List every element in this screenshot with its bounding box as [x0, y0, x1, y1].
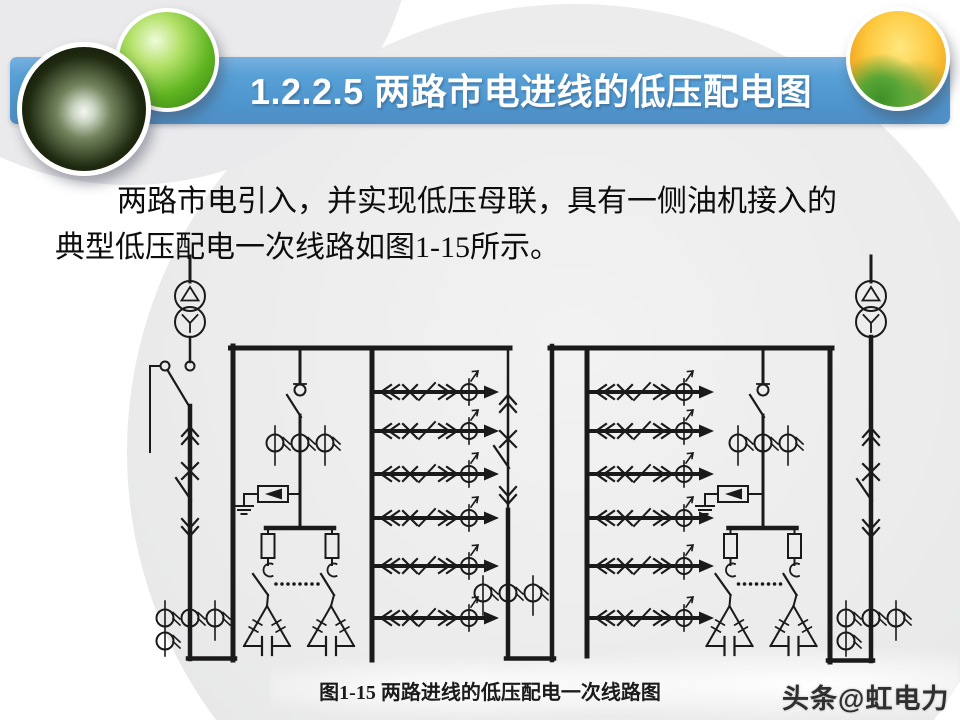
- feeder-rows-left: [372, 371, 499, 631]
- body-paragraph: 两路市电引入，并实现低压母联，具有一侧油机接入的 典型低压配电一次线路如图1-1…: [55, 179, 925, 271]
- feeder-rows-right: [587, 371, 714, 631]
- incoming-utility-left: [175, 256, 205, 362]
- feeder-row: [587, 410, 714, 444]
- ct-group-icon: [730, 426, 804, 465]
- drawout-breaker-icon: [494, 395, 516, 504]
- ct-group-icon: [838, 601, 912, 656]
- figure-caption: 图1-15 两路进线的低压配电一次线路图: [240, 676, 740, 705]
- capacitor-bank-icon: [244, 528, 354, 655]
- feeder-row: [587, 453, 714, 487]
- drawout-breaker-icon: [857, 428, 879, 537]
- ground-icon: [696, 506, 714, 514]
- capacitor-bank-icon: [707, 528, 817, 655]
- transformer-right-icon: [856, 281, 886, 337]
- transformer-left-icon: [175, 281, 205, 337]
- body-line-1: 两路市电引入，并实现低压母联，具有一侧油机接入的: [55, 179, 925, 225]
- feeder-row: [372, 497, 499, 531]
- feeder-row: [372, 453, 499, 487]
- feeder-row: [587, 545, 714, 579]
- feeder-row: [372, 545, 499, 579]
- tulip-photo: [846, 7, 950, 111]
- dandelion-photo: [17, 42, 151, 176]
- feeder-row: [372, 371, 499, 405]
- watermark-text: 头条@虹电力: [782, 677, 949, 716]
- ground-icon: [235, 506, 253, 514]
- slide-title: 1.2.2.5 两路市电进线的低压配电图: [250, 57, 812, 124]
- incoming-breaker-left: [157, 406, 236, 659]
- feeder-row: [372, 597, 499, 631]
- feeder-row: [587, 497, 714, 531]
- surge-arrester-icon: [718, 486, 748, 502]
- incoming-utility-right: [838, 256, 912, 661]
- surge-arrester-icon: [258, 486, 288, 502]
- body-line-2: 典型低压配电一次线路如图1-15所示。: [55, 225, 925, 271]
- ct-group-icon: [267, 426, 341, 465]
- capacitor-feeder-left: [235, 348, 354, 655]
- feeder-row: [372, 410, 499, 444]
- drawout-breaker-icon: [176, 427, 198, 536]
- feeder-row: [587, 597, 714, 631]
- presentation-slide: 1.2.2.5 两路市电进线的低压配电图 两路市电引入，并实现低压母联，具有一侧…: [0, 0, 960, 720]
- feeder-row: [587, 371, 714, 405]
- ct-group-icon: [475, 576, 549, 615]
- capacitor-feeder-right: [696, 348, 817, 655]
- ct-group-icon: [157, 601, 231, 656]
